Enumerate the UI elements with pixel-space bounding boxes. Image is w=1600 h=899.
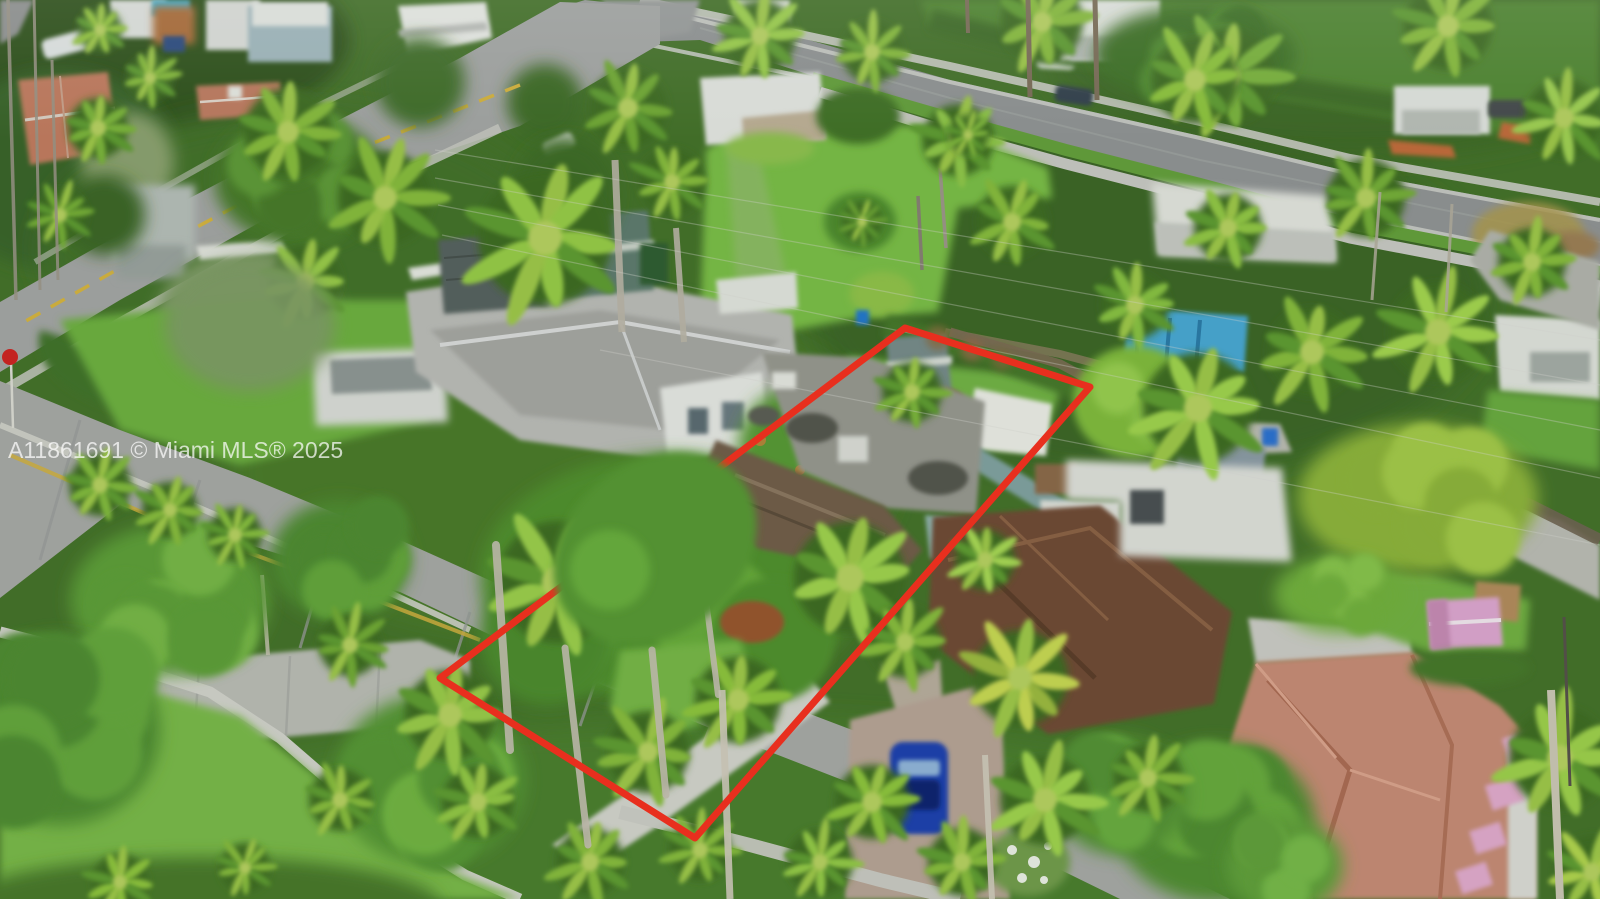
svg-text:A11861691 © Miami MLS® 2025: A11861691 © Miami MLS® 2025 <box>8 437 343 463</box>
